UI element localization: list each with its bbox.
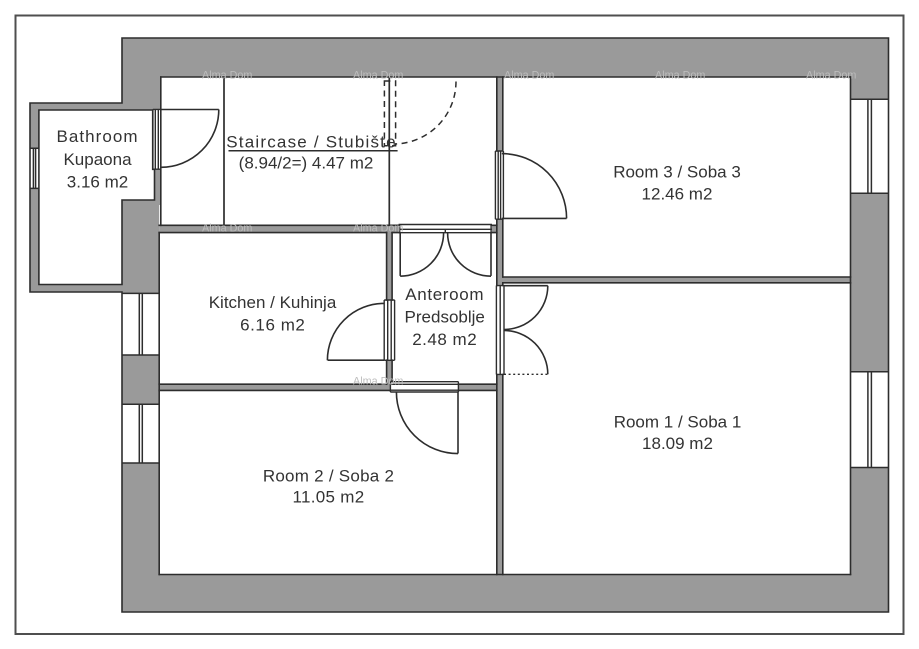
svg-text:18.09 m2: 18.09 m2 [642, 434, 713, 453]
svg-text:6.16 m2: 6.16 m2 [240, 316, 305, 335]
svg-text:Kitchen / Kuhinja: Kitchen / Kuhinja [209, 293, 337, 312]
svg-text:Room 3 / Soba 3: Room 3 / Soba 3 [613, 163, 741, 182]
svg-text:12.46 m2: 12.46 m2 [642, 185, 713, 204]
svg-text:Alma Dom: Alma Dom [353, 222, 403, 234]
svg-text:Bathroom: Bathroom [56, 127, 138, 146]
svg-text:Predsoblje: Predsoblje [405, 308, 485, 327]
svg-text:Anteroom: Anteroom [405, 285, 484, 304]
svg-text:Alma Dom: Alma Dom [504, 69, 554, 81]
svg-text:3.16 m2: 3.16 m2 [67, 173, 128, 192]
svg-text:Room 1 / Soba 1: Room 1 / Soba 1 [614, 413, 742, 432]
svg-text:Staircase / Stubište: Staircase / Stubište [226, 132, 396, 151]
svg-text:(8.94/2=) 4.47 m2: (8.94/2=) 4.47 m2 [239, 153, 374, 172]
svg-text:11.05 m2: 11.05 m2 [292, 488, 364, 507]
svg-text:Alma Dom: Alma Dom [353, 375, 403, 387]
svg-text:Kupaona: Kupaona [63, 150, 132, 169]
svg-text:Alma Dom: Alma Dom [202, 222, 252, 234]
svg-text:2.48 m2: 2.48 m2 [412, 330, 477, 349]
svg-text:Alma Dom: Alma Dom [202, 69, 252, 81]
svg-text:Alma Dom: Alma Dom [806, 69, 856, 81]
svg-text:Room 2 / Soba 2: Room 2 / Soba 2 [263, 467, 394, 486]
svg-text:Alma Dom: Alma Dom [655, 69, 705, 81]
svg-text:Alma Dom: Alma Dom [353, 69, 403, 81]
